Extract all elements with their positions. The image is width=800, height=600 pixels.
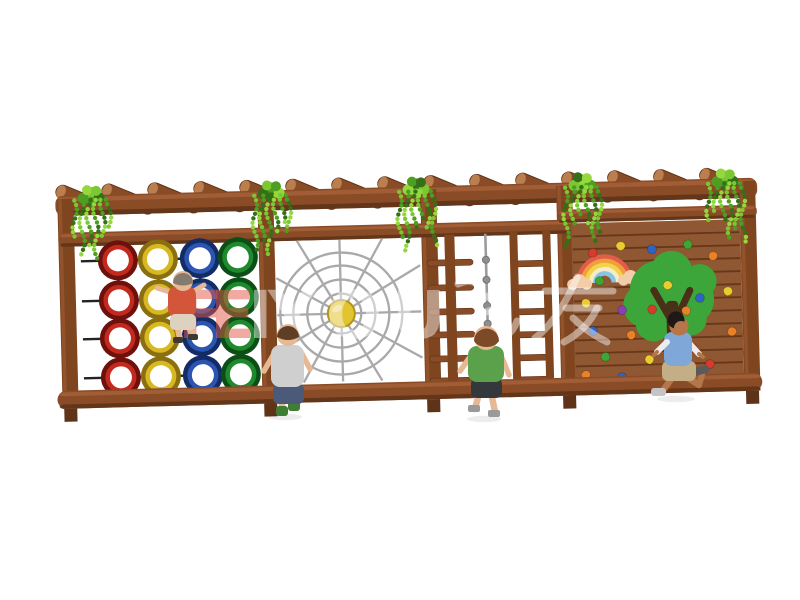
svg-text:U: U	[392, 277, 446, 354]
svg-text:O: O	[326, 277, 382, 354]
rock-climb-wall	[566, 219, 745, 390]
product-render: FEIYOU	[0, 0, 800, 600]
playground-scene: FEIYOU	[0, 0, 800, 600]
